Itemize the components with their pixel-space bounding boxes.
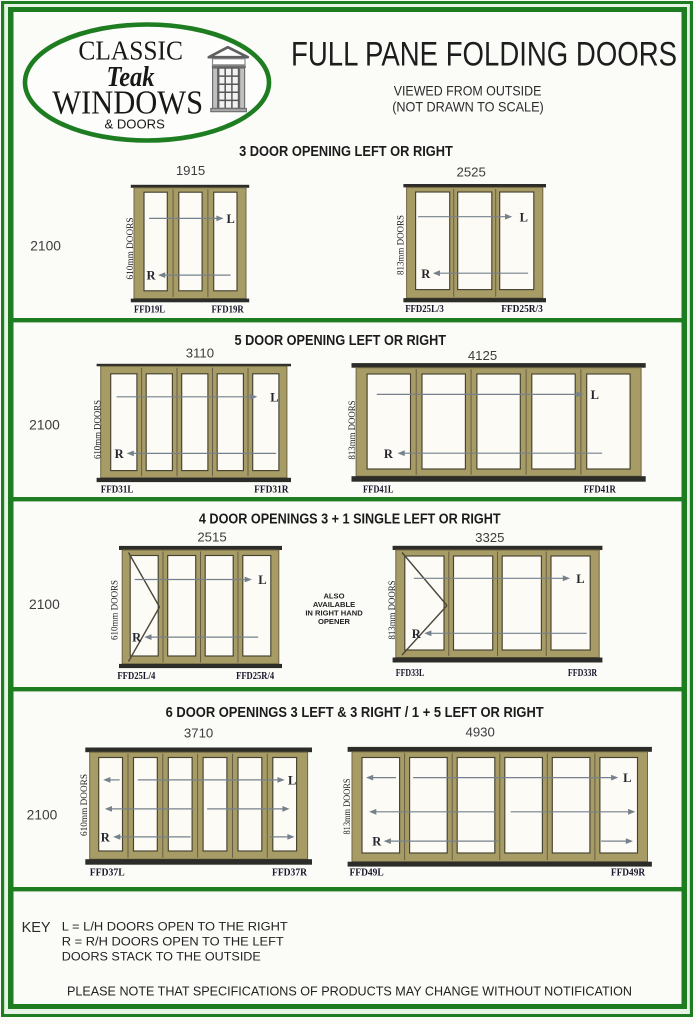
svg-text:1915: 1915 [176, 163, 205, 178]
svg-text:813mm DOORS: 813mm DOORS [397, 215, 407, 275]
svg-text:4125: 4125 [468, 348, 497, 363]
svg-text:(NOT DRAWN TO SCALE): (NOT DRAWN TO SCALE) [392, 98, 544, 114]
svg-text:FFD31R: FFD31R [254, 483, 289, 495]
svg-text:FFD33L: FFD33L [396, 667, 424, 679]
svg-text:813mm DOORS: 813mm DOORS [343, 779, 353, 835]
svg-text:R: R [115, 447, 125, 461]
svg-text:L: L [227, 212, 235, 226]
svg-text:FFD33R: FFD33R [568, 667, 598, 679]
svg-text:3 DOOR OPENING LEFT OR RIGHT: 3 DOOR OPENING LEFT OR RIGHT [239, 144, 453, 160]
svg-text:VIEWED FROM OUTSIDE: VIEWED FROM OUTSIDE [394, 82, 542, 98]
svg-text:610mm DOORS: 610mm DOORS [126, 218, 136, 280]
svg-text:2100: 2100 [30, 238, 61, 253]
svg-text:FFD19R: FFD19R [212, 303, 245, 315]
svg-text:L: L [520, 210, 528, 224]
svg-text:R: R [132, 631, 142, 645]
svg-text:R: R [412, 627, 422, 641]
svg-text:3710: 3710 [184, 726, 213, 741]
svg-text:3110: 3110 [186, 346, 214, 361]
svg-text:FFD49R: FFD49R [611, 867, 646, 879]
svg-text:L: L [623, 771, 631, 785]
svg-text:FULL PANE FOLDING DOORS: FULL PANE FOLDING DOORS [291, 36, 677, 74]
svg-text:4930: 4930 [466, 725, 495, 740]
svg-text:FFD41L: FFD41L [363, 483, 394, 495]
svg-text:FFD41R: FFD41R [584, 483, 617, 495]
svg-text:2515: 2515 [197, 530, 226, 545]
svg-text:3325: 3325 [475, 530, 504, 545]
svg-text:4 DOOR OPENINGS 3 + 1 SINGLE L: 4 DOOR OPENINGS 3 + 1 SINGLE LEFT OR RIG… [199, 512, 501, 528]
svg-text:R: R [146, 269, 156, 283]
svg-text:R: R [101, 830, 111, 844]
svg-text:FFD49L: FFD49L [350, 867, 384, 879]
svg-text:L: L [288, 773, 296, 787]
svg-text:FFD25L/4: FFD25L/4 [117, 670, 155, 682]
svg-text:R: R [421, 267, 431, 281]
svg-text:FFD37R: FFD37R [272, 866, 308, 878]
svg-text:PLEASE NOTE THAT SPECIFICATION: PLEASE NOTE THAT SPECIFICATIONS OF PRODU… [67, 984, 632, 998]
svg-text:DOORS STACK TO THE OUTSIDE: DOORS STACK TO THE OUTSIDE [62, 949, 261, 963]
svg-text:FFD31L: FFD31L [101, 483, 134, 495]
svg-text:610mm DOORS: 610mm DOORS [80, 774, 90, 836]
svg-text:OPENER: OPENER [318, 617, 351, 626]
svg-text:FFD37L: FFD37L [90, 866, 125, 878]
svg-text:813mm DOORS: 813mm DOORS [348, 401, 358, 460]
svg-text:L = L/H DOORS OPEN TO THE RIG: L = L/H DOORS OPEN TO THE RIGHT [62, 919, 288, 933]
svg-text:R: R [384, 447, 394, 461]
svg-text:R: R [372, 835, 382, 849]
svg-text:L: L [270, 390, 278, 404]
svg-text:813mm DOORS: 813mm DOORS [388, 581, 398, 640]
svg-text:610mm DOORS: 610mm DOORS [111, 580, 121, 640]
svg-text:FFD25R/3: FFD25R/3 [501, 303, 543, 315]
svg-text:CLASSIC: CLASSIC [78, 36, 183, 66]
svg-text:FFD19L: FFD19L [134, 303, 165, 315]
svg-text:L: L [591, 388, 599, 402]
svg-text:2100: 2100 [29, 597, 60, 612]
svg-text:& DOORS: & DOORS [105, 118, 165, 132]
svg-text:2100: 2100 [29, 417, 60, 432]
svg-text:2525: 2525 [457, 165, 486, 180]
svg-text:2100: 2100 [27, 808, 58, 823]
svg-text:KEY: KEY [22, 920, 51, 936]
svg-text:L: L [576, 572, 584, 586]
svg-text:610mm DOORS: 610mm DOORS [94, 400, 104, 459]
svg-text:R = R/H DOORS OPEN TO THE LEFT: R = R/H DOORS OPEN TO THE LEFT [62, 934, 285, 948]
svg-text:FFD25L/3: FFD25L/3 [405, 303, 444, 315]
svg-text:WINDOWS: WINDOWS [52, 85, 203, 122]
svg-text:6 DOOR OPENINGS 3 LEFT & 3 RIG: 6 DOOR OPENINGS 3 LEFT & 3 RIGHT / 1 + 5… [166, 705, 544, 721]
svg-text:FFD25R/4: FFD25R/4 [236, 670, 274, 682]
svg-text:5 DOOR OPENING LEFT OR RIGHT: 5 DOOR OPENING LEFT OR RIGHT [235, 333, 447, 349]
svg-text:L: L [258, 573, 266, 587]
